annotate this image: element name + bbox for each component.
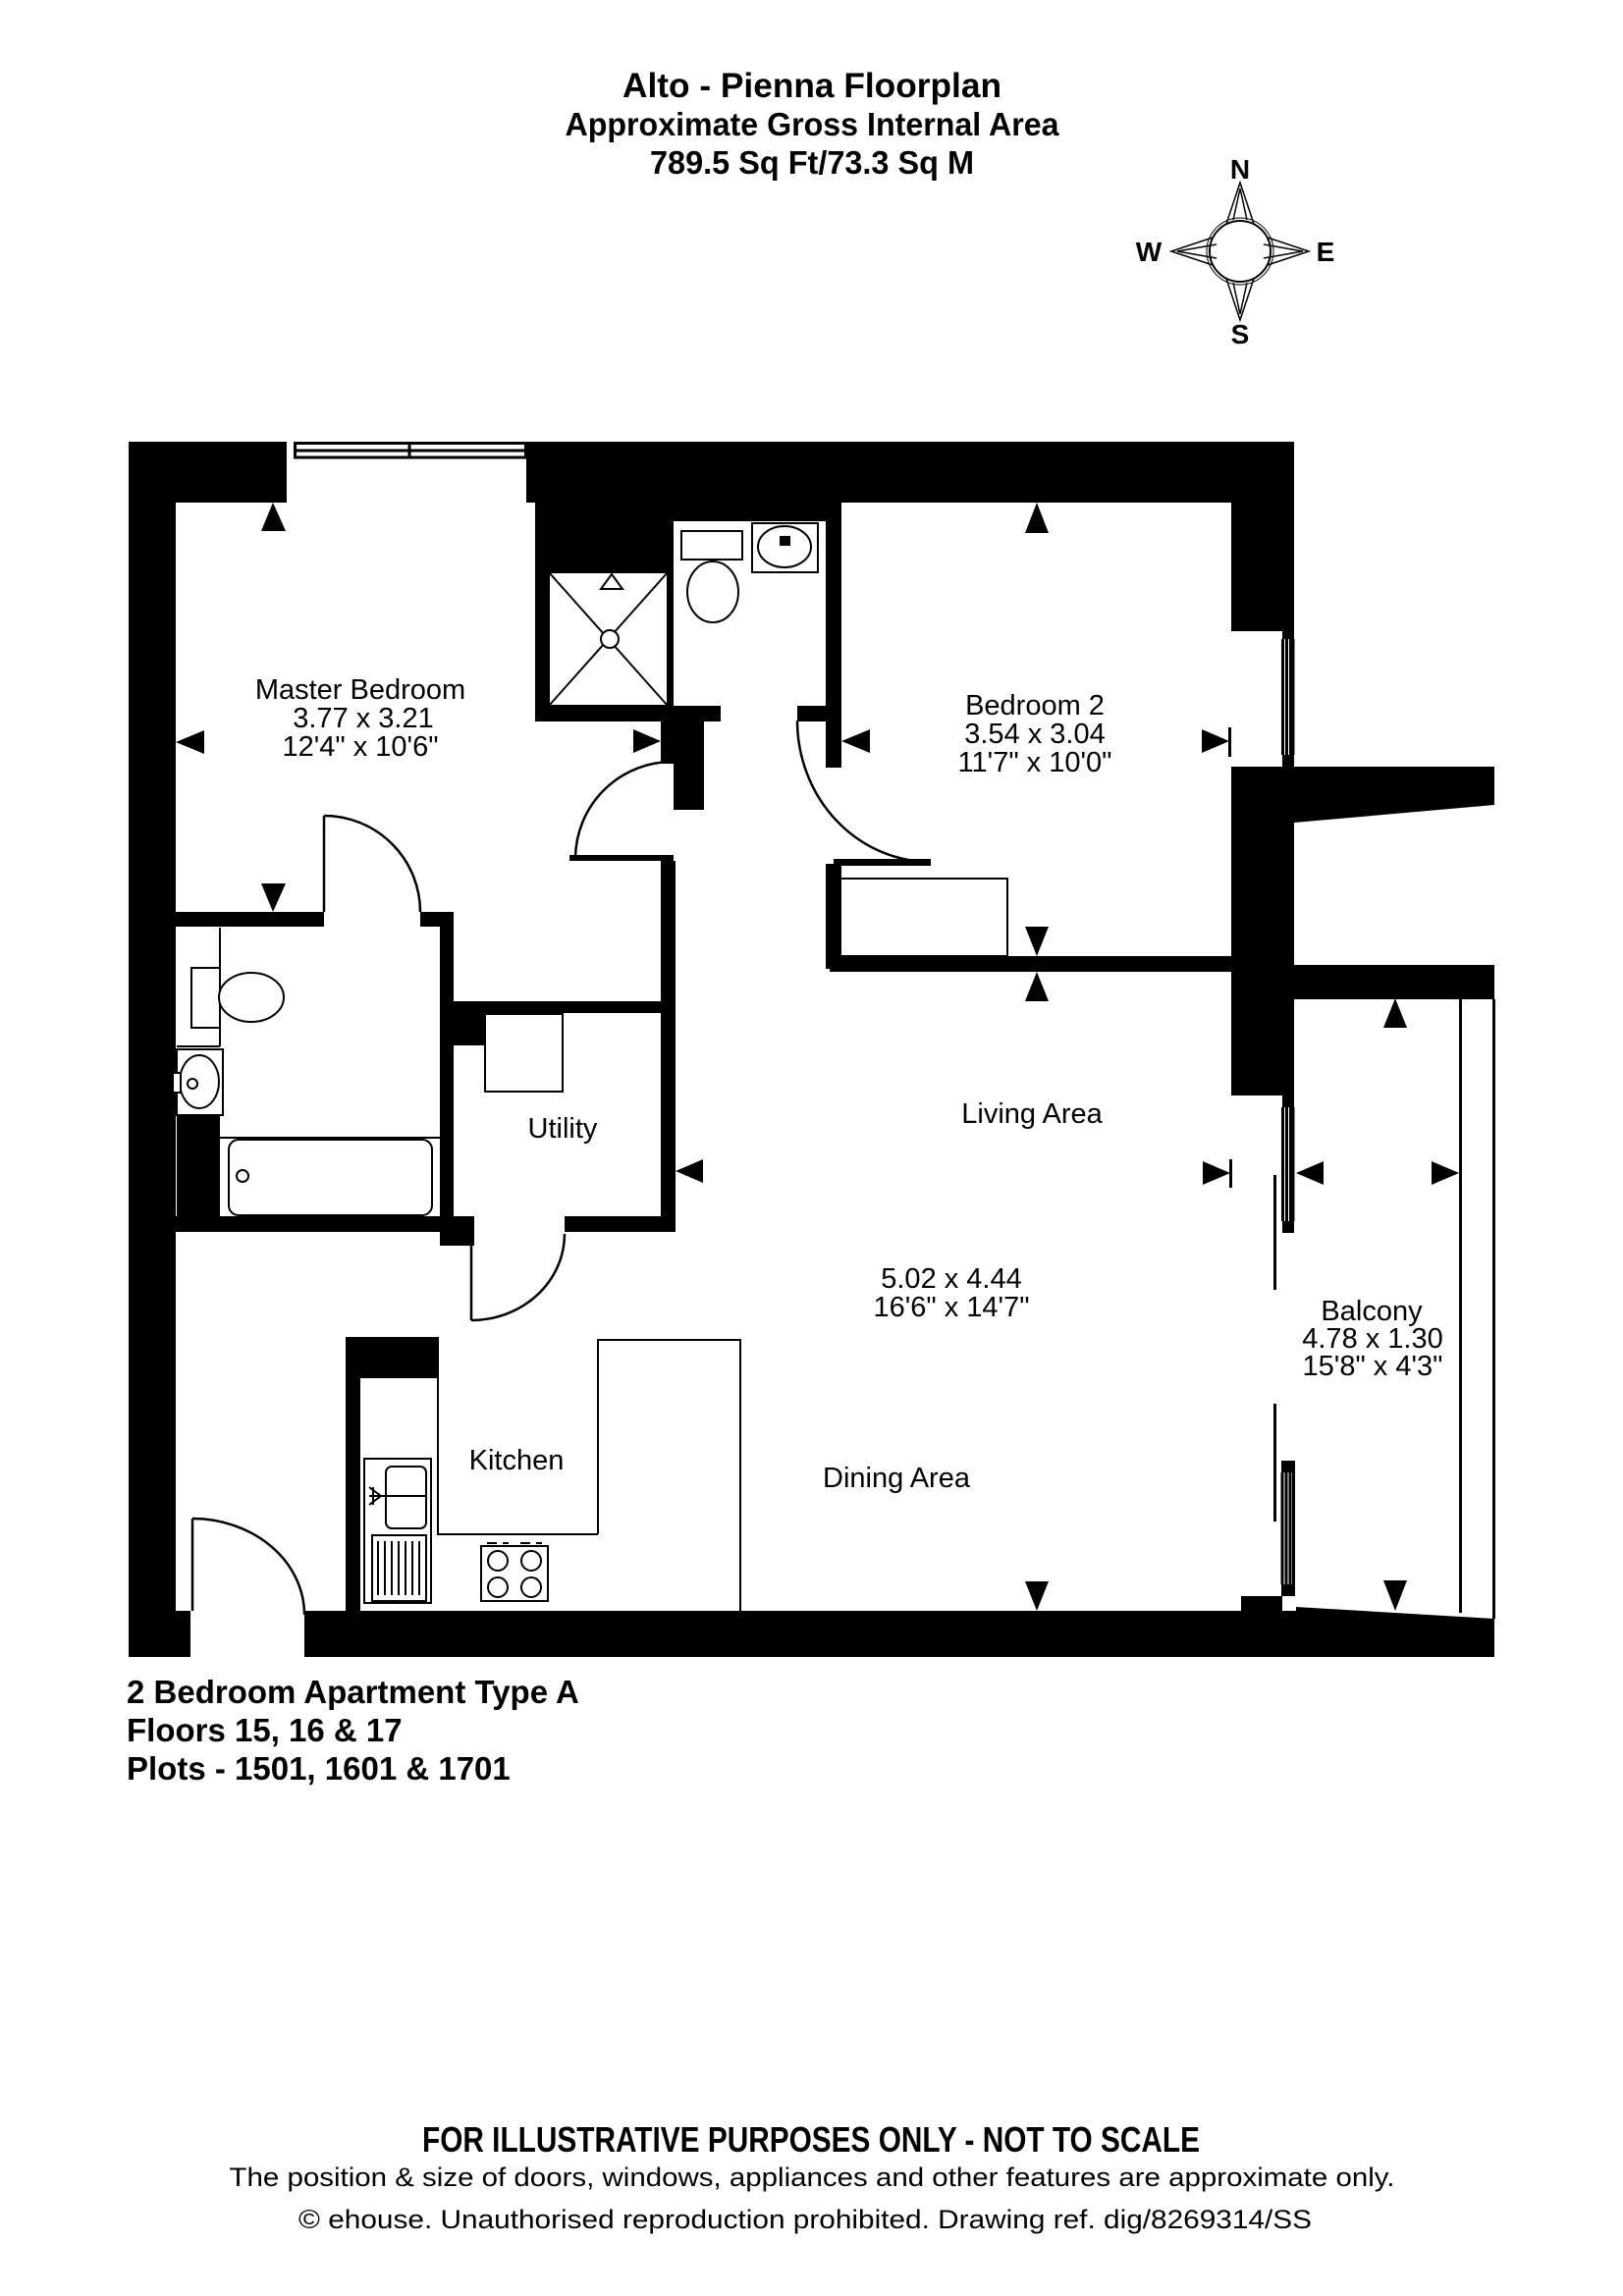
svg-text:N: N <box>1230 154 1250 185</box>
svg-text:16'6" x 14'7": 16'6" x 14'7" <box>873 1292 1029 1323</box>
svg-text:S: S <box>1231 319 1250 349</box>
svg-text:Bedroom 2: Bedroom 2 <box>965 690 1105 721</box>
svg-text:Approximate Gross Internal Are: Approximate Gross Internal Area <box>566 106 1060 142</box>
svg-text:15'8" x 4'3": 15'8" x 4'3" <box>1303 1351 1443 1382</box>
svg-text:Utility: Utility <box>528 1113 598 1145</box>
svg-text:3.77 x 3.21: 3.77 x 3.21 <box>293 703 434 734</box>
svg-text:W: W <box>1136 237 1163 267</box>
svg-text:11'7" x 10'0": 11'7" x 10'0" <box>958 747 1112 778</box>
svg-text:Plots - 1501, 1601 & 1701: Plots - 1501, 1601 & 1701 <box>127 1750 511 1787</box>
svg-text:The position & size of doors,: The position & size of doors, windows, a… <box>230 2163 1395 2192</box>
svg-text:Living Area: Living Area <box>961 1098 1103 1130</box>
svg-text:© ehouse. Unauthorised reprodu: © ehouse. Unauthorised reproduction proh… <box>298 2205 1312 2234</box>
svg-text:2 Bedroom Apartment Type A: 2 Bedroom Apartment Type A <box>127 1674 579 1710</box>
svg-text:Alto - Pienna Floorplan: Alto - Pienna Floorplan <box>622 67 1001 105</box>
svg-text:5.02 x 4.44: 5.02 x 4.44 <box>881 1263 1022 1295</box>
svg-text:Kitchen: Kitchen <box>469 1445 565 1476</box>
svg-text:789.5 Sq Ft/73.3 Sq M: 789.5 Sq Ft/73.3 Sq M <box>650 144 974 181</box>
svg-text:Floors 15, 16 & 17: Floors 15, 16 & 17 <box>127 1712 403 1748</box>
svg-text:Master Bedroom: Master Bedroom <box>255 674 465 706</box>
svg-text:E: E <box>1317 237 1335 267</box>
svg-text:Dining Area: Dining Area <box>823 1463 971 1494</box>
svg-text:FOR ILLUSTRATIVE PURPOSES ONLY: FOR ILLUSTRATIVE PURPOSES ONLY - NOT TO … <box>422 2119 1200 2160</box>
svg-text:12'4" x 10'6": 12'4" x 10'6" <box>282 731 438 763</box>
svg-text:3.54 x 3.04: 3.54 x 3.04 <box>964 719 1106 750</box>
